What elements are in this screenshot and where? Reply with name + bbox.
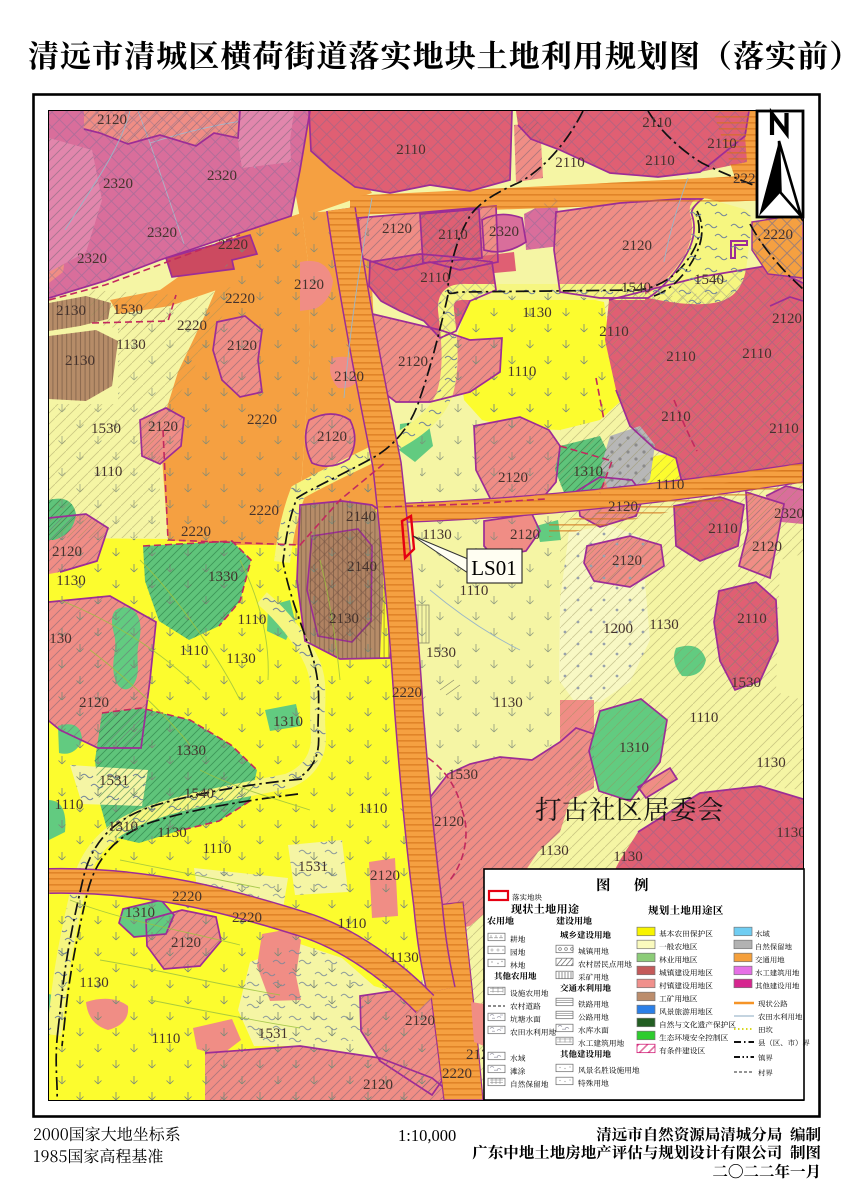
svg-text:1130: 1130 xyxy=(79,975,108,991)
svg-text:1310: 1310 xyxy=(108,819,138,835)
svg-text:1330: 1330 xyxy=(208,569,238,585)
svg-text:1310: 1310 xyxy=(619,740,649,756)
svg-text:2110: 2110 xyxy=(661,409,690,425)
svg-text:1110: 1110 xyxy=(359,801,388,817)
svg-text:2120: 2120 xyxy=(752,539,782,555)
svg-text:2120: 2120 xyxy=(363,1077,393,1093)
svg-text:1531: 1531 xyxy=(298,859,328,875)
svg-text:2220: 2220 xyxy=(225,291,255,307)
svg-text:1110: 1110 xyxy=(460,583,489,599)
svg-text:1540: 1540 xyxy=(621,280,651,296)
svg-text:2320: 2320 xyxy=(207,168,237,184)
svg-text:2220: 2220 xyxy=(177,318,207,334)
svg-text:2110: 2110 xyxy=(708,521,737,537)
svg-text:2120: 2120 xyxy=(772,311,802,327)
svg-text:2140: 2140 xyxy=(347,559,377,575)
svg-text:2320: 2320 xyxy=(77,251,107,267)
svg-text:2110: 2110 xyxy=(420,270,449,286)
svg-text:2220: 2220 xyxy=(392,685,422,701)
svg-text:2320: 2320 xyxy=(103,176,133,192)
svg-text:1530: 1530 xyxy=(91,421,121,437)
svg-text:2220: 2220 xyxy=(172,889,202,905)
svg-text:1310: 1310 xyxy=(125,905,155,921)
svg-text:2120: 2120 xyxy=(79,695,109,711)
svg-text:2120: 2120 xyxy=(52,544,82,560)
svg-text:2110: 2110 xyxy=(599,324,628,340)
svg-text:2130: 2130 xyxy=(329,611,359,627)
svg-text:1110: 1110 xyxy=(338,916,367,932)
svg-text:1531: 1531 xyxy=(258,1026,288,1042)
svg-text:2120: 2120 xyxy=(227,338,257,354)
svg-text:1110: 1110 xyxy=(180,643,209,659)
svg-text:1330: 1330 xyxy=(176,743,206,759)
svg-text:1310: 1310 xyxy=(573,464,603,480)
svg-text:2110: 2110 xyxy=(769,421,798,437)
svg-text:2320: 2320 xyxy=(489,224,519,240)
svg-text:1110: 1110 xyxy=(152,1031,181,1047)
svg-text:1130: 1130 xyxy=(389,950,418,966)
svg-text:2110: 2110 xyxy=(645,153,674,169)
svg-text:1530: 1530 xyxy=(448,767,478,783)
svg-text:2120: 2120 xyxy=(317,429,347,445)
svg-text:2320: 2320 xyxy=(147,225,177,241)
svg-text:1130: 1130 xyxy=(613,849,642,865)
svg-text:1310: 1310 xyxy=(273,714,303,730)
svg-text:1130: 1130 xyxy=(539,843,568,859)
svg-text:1110: 1110 xyxy=(656,477,685,493)
svg-text:2110: 2110 xyxy=(438,227,467,243)
svg-text:2110: 2110 xyxy=(707,136,736,152)
svg-text:1130: 1130 xyxy=(157,825,186,841)
svg-text:2120: 2120 xyxy=(612,553,642,569)
svg-text:2120: 2120 xyxy=(434,814,464,830)
svg-text:2220: 2220 xyxy=(442,1066,472,1082)
svg-text:2110: 2110 xyxy=(737,611,766,627)
svg-text:LS01: LS01 xyxy=(471,556,517,580)
svg-text:2120: 2120 xyxy=(608,499,638,515)
svg-text:1130: 1130 xyxy=(649,617,678,633)
svg-text:2140: 2140 xyxy=(346,509,376,525)
svg-text:1110: 1110 xyxy=(238,612,267,628)
svg-text:2120: 2120 xyxy=(148,419,178,435)
svg-text:2120: 2120 xyxy=(334,369,364,385)
svg-text:2120: 2120 xyxy=(398,354,428,370)
svg-text:1110: 1110 xyxy=(508,364,537,380)
svg-text:1130: 1130 xyxy=(776,825,805,841)
svg-text:1130: 1130 xyxy=(226,651,255,667)
svg-text:2120: 2120 xyxy=(498,470,528,486)
svg-text:2120: 2120 xyxy=(97,112,127,128)
svg-text:2120: 2120 xyxy=(622,238,652,254)
svg-text:2120: 2120 xyxy=(382,221,412,237)
svg-text:1130: 1130 xyxy=(522,305,551,321)
svg-text:2220: 2220 xyxy=(763,227,793,243)
svg-text:1530: 1530 xyxy=(731,675,761,691)
svg-text:2220: 2220 xyxy=(249,503,279,519)
svg-text:2120: 2120 xyxy=(294,277,324,293)
svg-text:2110: 2110 xyxy=(642,115,671,131)
svg-text:2120: 2120 xyxy=(171,935,201,951)
svg-text:1110: 1110 xyxy=(690,710,719,726)
svg-text:1130: 1130 xyxy=(422,527,451,543)
svg-text:1110: 1110 xyxy=(94,464,123,480)
svg-text:1540: 1540 xyxy=(184,786,214,802)
svg-text:1130: 1130 xyxy=(493,695,522,711)
svg-text:2130: 2130 xyxy=(56,303,86,319)
svg-text:1130: 1130 xyxy=(756,755,785,771)
svg-text:1531: 1531 xyxy=(99,773,129,789)
svg-text:2220: 2220 xyxy=(247,412,277,428)
svg-text:2120: 2120 xyxy=(370,868,400,884)
svg-text:1530: 1530 xyxy=(426,645,456,661)
svg-text:2220: 2220 xyxy=(181,524,211,540)
svg-text:1110: 1110 xyxy=(203,841,232,857)
svg-text:1200: 1200 xyxy=(603,621,633,637)
svg-text:2320: 2320 xyxy=(774,506,804,522)
svg-text:1130: 1130 xyxy=(116,337,145,353)
svg-text:2120: 2120 xyxy=(510,527,540,543)
svg-text:1130: 1130 xyxy=(56,573,85,589)
svg-text:1540: 1540 xyxy=(694,272,724,288)
svg-text:1110: 1110 xyxy=(55,797,84,813)
svg-text:2110: 2110 xyxy=(555,155,584,171)
svg-text:2220: 2220 xyxy=(232,910,262,926)
svg-text:2110: 2110 xyxy=(742,346,771,362)
svg-text:1:10,000: 1:10,000 xyxy=(398,1126,456,1145)
svg-text:1530: 1530 xyxy=(113,302,143,318)
svg-text:2130: 2130 xyxy=(65,353,95,369)
svg-text:2110: 2110 xyxy=(666,349,695,365)
svg-text:2110: 2110 xyxy=(396,142,425,158)
svg-text:2120: 2120 xyxy=(405,1013,435,1029)
svg-text:2220: 2220 xyxy=(218,237,248,253)
